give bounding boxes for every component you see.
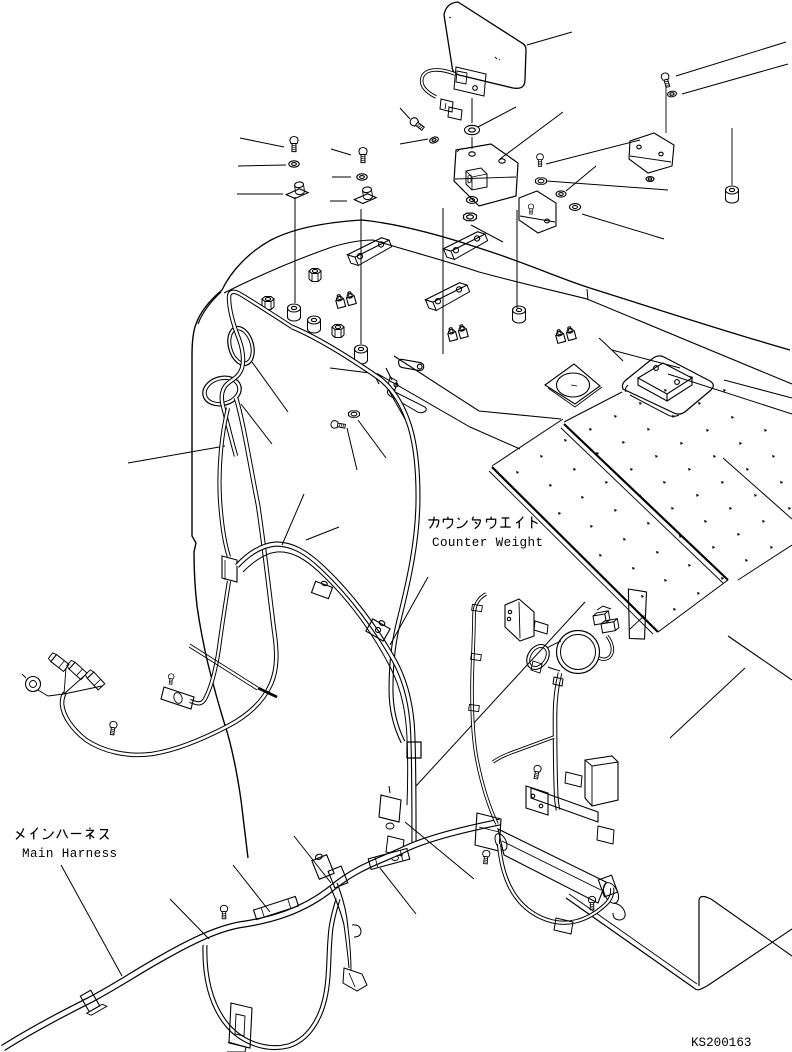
svg-text:Main Harness: Main Harness bbox=[22, 847, 118, 861]
svg-text:Counter Weight: Counter Weight bbox=[432, 536, 543, 550]
svg-text:KS200163: KS200163 bbox=[691, 1036, 751, 1050]
